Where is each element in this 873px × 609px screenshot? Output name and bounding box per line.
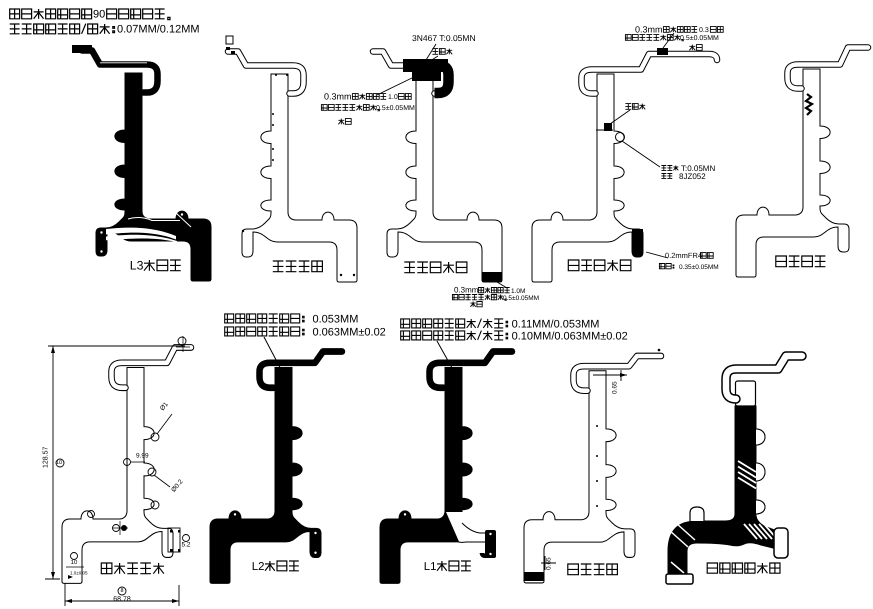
svg-text:0.65: 0.65 [611, 381, 618, 394]
svg-text:9.99: 9.99 [136, 452, 149, 459]
svg-text:L1: L1 [424, 561, 437, 573]
svg-text:0.5±0.05MM: 0.5±0.05MM [503, 295, 539, 302]
svg-text:0.3mm: 0.3mm [635, 24, 663, 34]
svg-text:128.57: 128.57 [43, 446, 50, 468]
svg-text:5.2: 5.2 [181, 541, 190, 548]
svg-text:1.0: 1.0 [388, 94, 398, 101]
svg-text:0.5±0.05MM: 0.5±0.05MM [376, 105, 415, 112]
svg-text:L2: L2 [252, 561, 265, 573]
svg-text:0.053MM: 0.053MM [313, 314, 359, 326]
svg-text:0.3: 0.3 [699, 27, 709, 34]
svg-text:0.35±0.05MM: 0.35±0.05MM [679, 264, 719, 271]
svg-text:0.2mmFR4: 0.2mmFR4 [665, 251, 702, 260]
svg-text:1.0M: 1.0M [511, 288, 525, 295]
svg-text:90: 90 [93, 9, 105, 21]
svg-text:3N467 T:0.05MN: 3N467 T:0.05MN [412, 33, 476, 43]
svg-text:0.063MM±0.02: 0.063MM±0.02 [313, 327, 386, 339]
svg-text:10: 10 [71, 559, 78, 566]
svg-text:L3: L3 [130, 259, 144, 273]
svg-text:0.10MM/0.063MM±0.02: 0.10MM/0.063MM±0.02 [512, 331, 628, 343]
svg-text:1.0±0.05: 1.0±0.05 [70, 571, 88, 576]
svg-text:0.3mm: 0.3mm [324, 91, 352, 101]
svg-text:0.5±0.05MM: 0.5±0.05MM [680, 35, 719, 42]
svg-text:10: 10 [56, 460, 62, 466]
svg-text:0.07MM/0.12MM: 0.07MM/0.12MM [117, 24, 200, 36]
svg-text:8JZ052: 8JZ052 [679, 172, 706, 181]
svg-text:68.78: 68.78 [113, 596, 131, 603]
svg-text:8: 8 [120, 588, 123, 594]
svg-text:0.11MM/0.053MM: 0.11MM/0.053MM [512, 319, 600, 331]
svg-text:0.3mm: 0.3mm [454, 286, 479, 295]
svg-text:0.65: 0.65 [545, 557, 552, 570]
